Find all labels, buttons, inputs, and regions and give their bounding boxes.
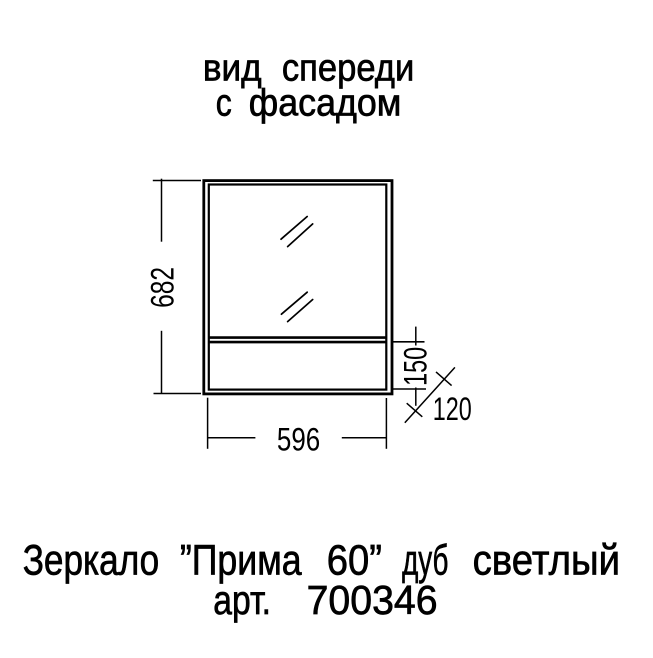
- svg-text:150: 150: [398, 347, 434, 386]
- svg-text:682: 682: [144, 267, 180, 308]
- svg-text:арт.: арт.: [213, 577, 271, 623]
- svg-text:120: 120: [433, 391, 472, 427]
- svg-text:с: с: [216, 82, 232, 124]
- svg-text:Зеркало: Зеркало: [23, 538, 160, 585]
- svg-text:фасадом: фасадом: [249, 82, 402, 124]
- svg-text:700346: 700346: [307, 577, 438, 623]
- svg-text:596: 596: [277, 422, 320, 458]
- svg-text:светлый: светлый: [473, 538, 620, 585]
